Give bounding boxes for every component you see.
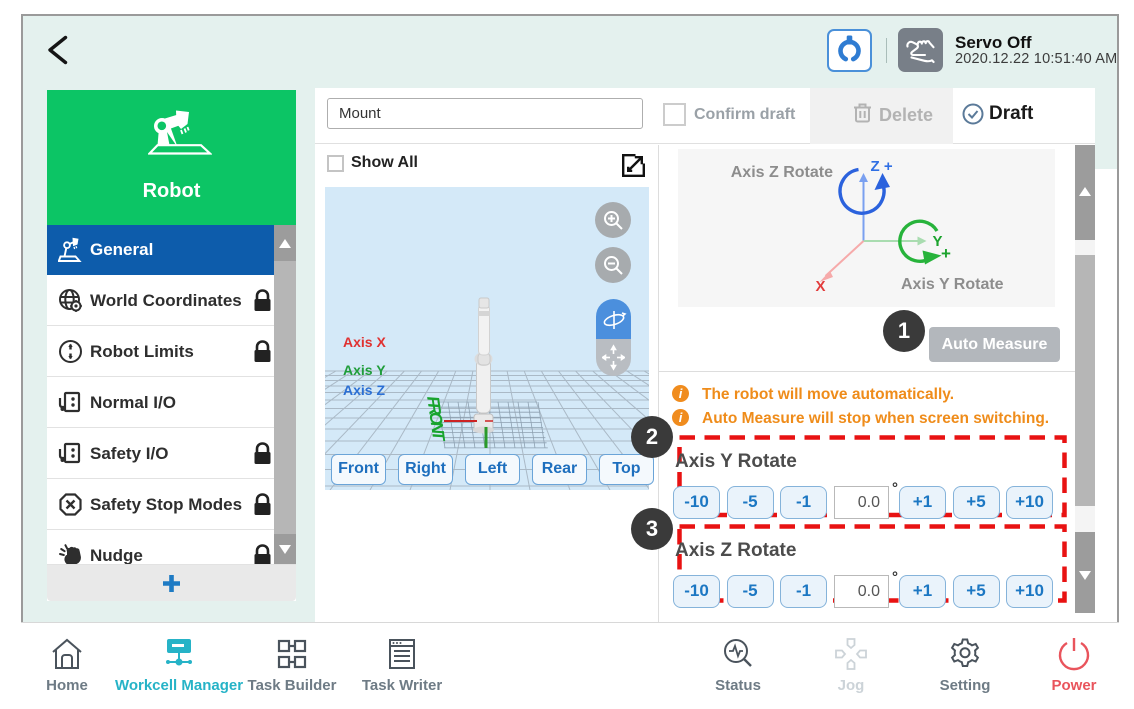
- svg-text:X: X: [816, 278, 826, 295]
- svg-text:Axis Y Rotate: Axis Y Rotate: [901, 276, 1004, 293]
- svg-text:Z +: Z +: [871, 158, 893, 175]
- svg-text:Axis Y: Axis Y: [343, 362, 386, 378]
- svg-text:+: +: [941, 244, 951, 263]
- svg-text:Axis X: Axis X: [343, 334, 386, 350]
- svg-text:FRONT: FRONT: [423, 396, 450, 442]
- svg-text:Axis Z: Axis Z: [343, 382, 385, 398]
- svg-text:Axis Z Rotate: Axis Z Rotate: [731, 164, 833, 181]
